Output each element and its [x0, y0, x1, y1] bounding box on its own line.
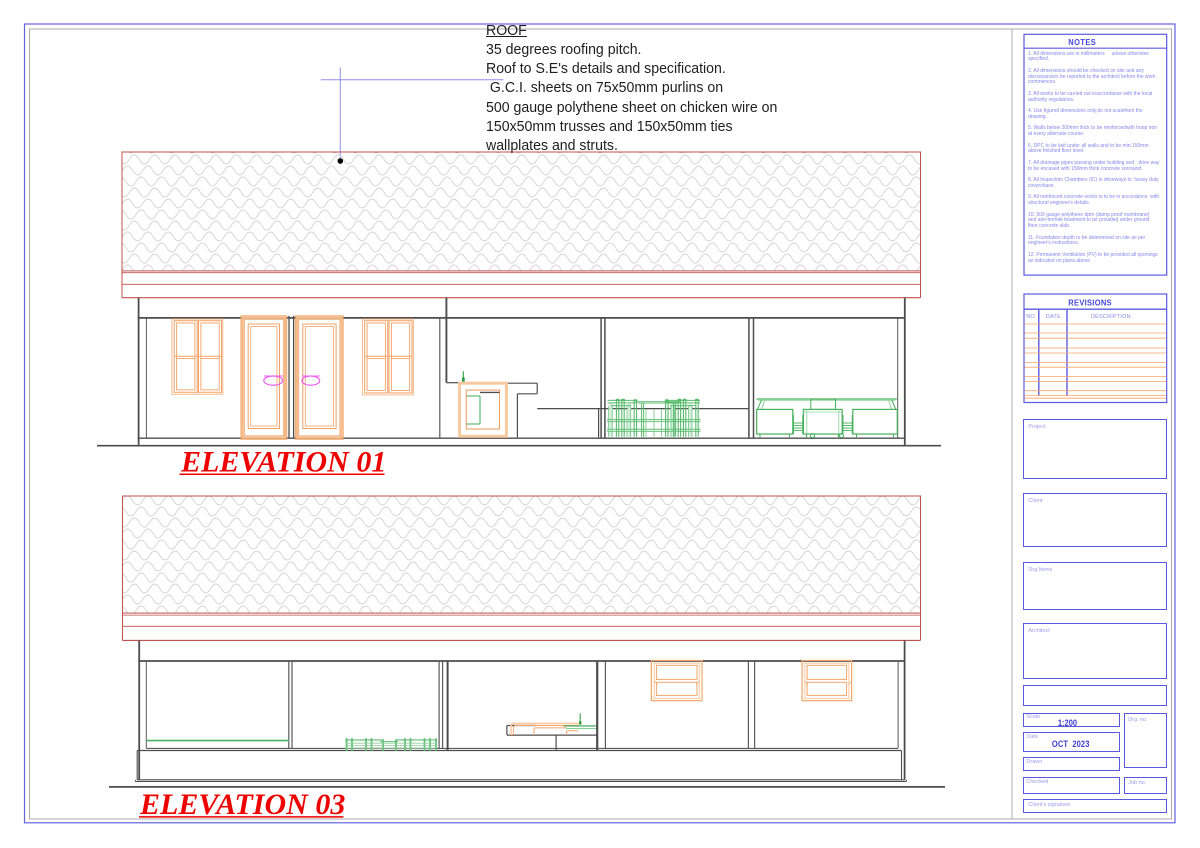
svg-text:ELEVATION 03: ELEVATION 03 — [139, 788, 345, 821]
svg-text:ELEVATION 01: ELEVATION 01 — [180, 445, 386, 478]
